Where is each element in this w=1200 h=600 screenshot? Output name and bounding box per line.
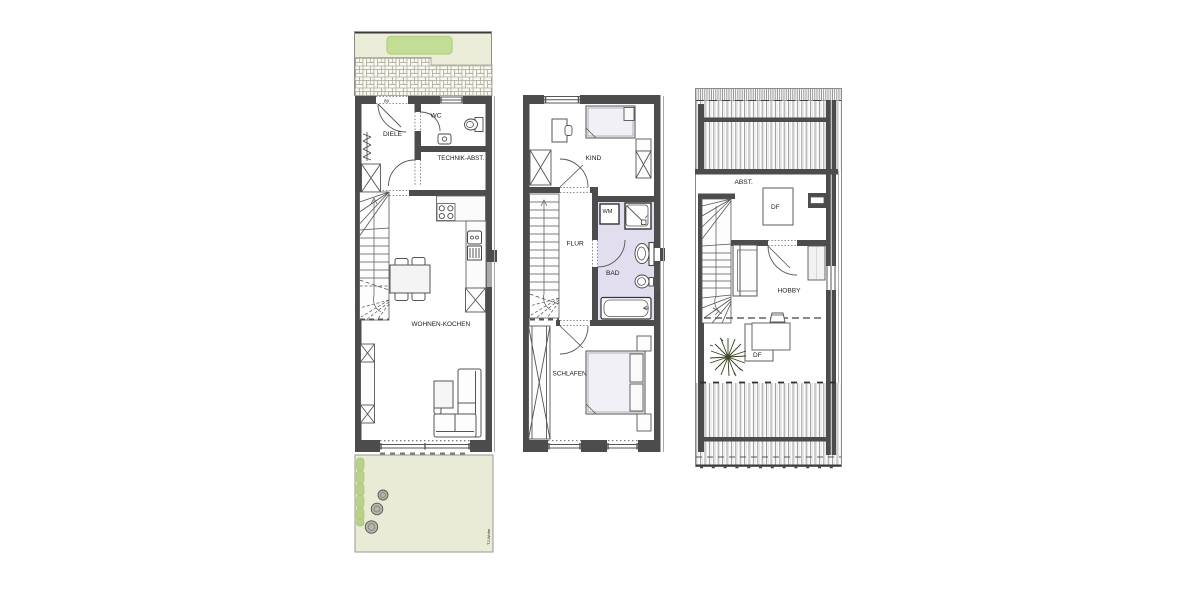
svg-text:DF: DF xyxy=(753,352,762,359)
svg-text:ABST.: ABST. xyxy=(735,179,753,186)
svg-text:TJ-Wohn: TJ-Wohn xyxy=(486,529,491,545)
svg-text:DF: DF xyxy=(771,204,780,211)
svg-text:SCHLAFEN: SCHLAFEN xyxy=(553,371,587,378)
svg-text:WC: WC xyxy=(431,113,442,120)
svg-text:KIND: KIND xyxy=(586,155,602,162)
svg-text:89: 89 xyxy=(384,99,390,104)
svg-text:TECHNIK-ABST.: TECHNIK-ABST. xyxy=(438,155,485,162)
svg-text:FLUR: FLUR xyxy=(567,241,584,248)
svg-text:HOBBY: HOBBY xyxy=(778,288,802,295)
svg-text:DIELE: DIELE xyxy=(383,131,403,138)
svg-text:BAD: BAD xyxy=(606,270,620,277)
svg-text:WOHNEN-KOCHEN: WOHNEN-KOCHEN xyxy=(412,321,471,328)
svg-text:WM: WM xyxy=(603,209,613,215)
